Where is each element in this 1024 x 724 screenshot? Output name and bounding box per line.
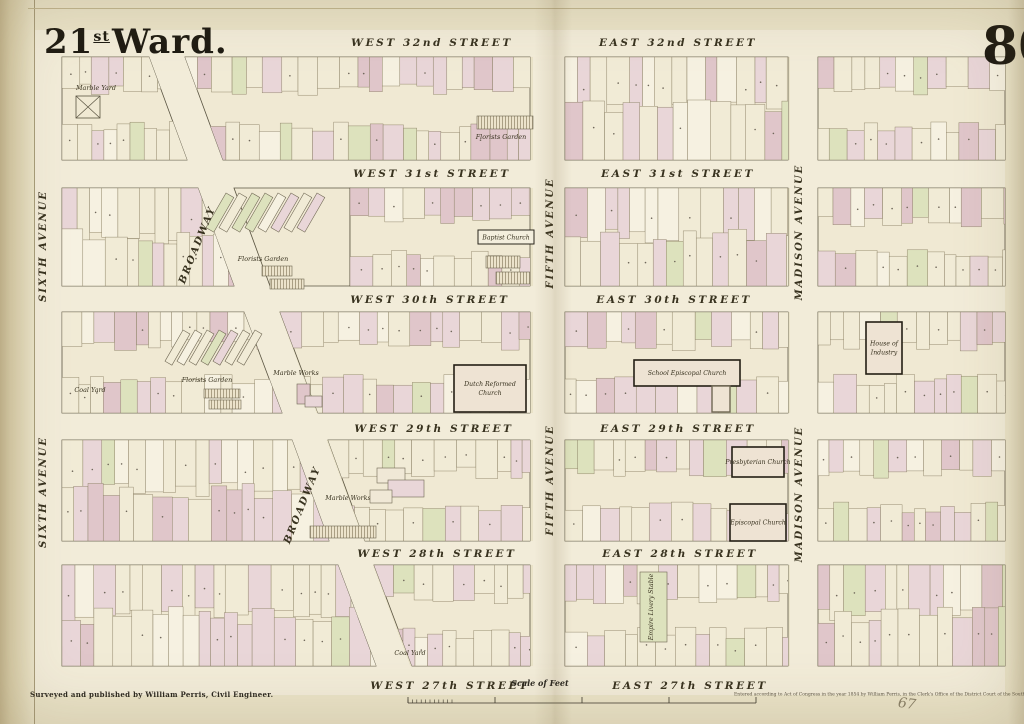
lot bbox=[368, 188, 385, 216]
lot-mark bbox=[857, 209, 859, 211]
lot bbox=[127, 239, 138, 286]
lot bbox=[970, 256, 988, 286]
lot bbox=[143, 565, 162, 616]
lot bbox=[632, 508, 649, 541]
lot bbox=[340, 57, 359, 87]
lot bbox=[768, 565, 780, 601]
lot bbox=[605, 188, 618, 229]
lot-mark bbox=[358, 202, 360, 204]
lot bbox=[693, 504, 711, 541]
lot bbox=[462, 57, 474, 88]
lot-mark bbox=[842, 635, 844, 637]
landmark-xbox-1 bbox=[76, 96, 100, 118]
lot bbox=[296, 619, 313, 666]
street-band bbox=[35, 286, 1005, 312]
lot bbox=[472, 251, 488, 286]
lot-mark bbox=[382, 328, 384, 330]
lot-mark bbox=[953, 391, 955, 393]
map-canvas: Marble YardFlorists GardenBaptist Church… bbox=[0, 0, 1024, 724]
landmark-rect-21 bbox=[712, 386, 730, 412]
lot-mark bbox=[436, 328, 438, 330]
lot bbox=[688, 100, 711, 160]
lot bbox=[292, 128, 312, 160]
lot-mark bbox=[215, 463, 217, 465]
lot bbox=[447, 57, 462, 89]
lot bbox=[881, 505, 903, 541]
lot-mark bbox=[737, 254, 739, 256]
ward-number: 21 bbox=[44, 22, 93, 62]
lot bbox=[818, 440, 829, 476]
lot bbox=[864, 123, 877, 160]
lot bbox=[473, 188, 490, 220]
lot bbox=[62, 620, 81, 666]
lot-mark bbox=[940, 393, 942, 395]
landmark-label: Florists Garden bbox=[237, 255, 289, 263]
lot bbox=[732, 312, 751, 340]
lot-mark bbox=[104, 592, 106, 594]
lot bbox=[94, 565, 116, 615]
lot-mark bbox=[995, 269, 997, 271]
lot bbox=[511, 188, 529, 215]
landmark-hatched-8 bbox=[270, 279, 304, 289]
lot-mark bbox=[92, 469, 94, 471]
lot bbox=[391, 251, 406, 286]
lot-mark bbox=[935, 266, 937, 268]
lot bbox=[62, 488, 74, 541]
lot-mark bbox=[917, 265, 919, 267]
lot bbox=[253, 440, 273, 491]
lot bbox=[113, 616, 132, 666]
lot bbox=[576, 381, 596, 413]
lot bbox=[293, 565, 309, 617]
lot bbox=[309, 565, 321, 614]
lot-mark bbox=[204, 588, 206, 590]
street-name-west: WEST 28th STREET bbox=[357, 548, 516, 560]
lot bbox=[687, 57, 706, 105]
lot bbox=[952, 618, 972, 666]
lot bbox=[710, 102, 731, 161]
lot-mark bbox=[500, 586, 502, 588]
lot bbox=[62, 229, 83, 286]
lot bbox=[232, 57, 246, 94]
street-name-west: WEST 31st STREET bbox=[353, 168, 510, 180]
lot bbox=[412, 382, 430, 413]
lot-mark bbox=[887, 73, 889, 75]
lot bbox=[867, 508, 881, 541]
lot bbox=[587, 636, 604, 666]
lot-mark bbox=[413, 268, 415, 270]
lot-mark bbox=[767, 392, 769, 394]
lot bbox=[252, 609, 274, 667]
lot-mark bbox=[951, 592, 953, 594]
lot bbox=[649, 503, 671, 541]
lot-mark bbox=[605, 393, 607, 395]
lot bbox=[895, 57, 913, 91]
lot bbox=[199, 611, 210, 666]
lot bbox=[818, 128, 829, 160]
landmark-label: House of bbox=[869, 341, 900, 348]
greenhouse-row bbox=[270, 279, 304, 289]
lot bbox=[618, 188, 630, 239]
lot bbox=[565, 440, 578, 469]
lot-mark bbox=[249, 140, 251, 142]
lot bbox=[82, 312, 94, 343]
lot-mark bbox=[978, 269, 980, 271]
lot bbox=[474, 57, 493, 90]
lot bbox=[227, 490, 242, 541]
lot bbox=[626, 635, 638, 667]
lot-mark bbox=[232, 138, 234, 140]
lot bbox=[443, 631, 456, 667]
lot bbox=[105, 237, 127, 286]
lot bbox=[348, 126, 370, 160]
landmark-label: Presbyterian Church bbox=[724, 459, 790, 466]
lot bbox=[947, 375, 962, 413]
lot-mark bbox=[332, 393, 334, 395]
lot-mark bbox=[245, 472, 247, 474]
lot-mark bbox=[376, 139, 378, 141]
lot bbox=[481, 312, 501, 343]
landmark-label: Marble Works bbox=[324, 494, 371, 502]
lot-mark bbox=[398, 266, 400, 268]
lot-mark bbox=[907, 525, 909, 527]
lot bbox=[750, 312, 762, 349]
lot-mark bbox=[532, 580, 534, 582]
lot bbox=[888, 440, 906, 472]
lot bbox=[102, 188, 118, 237]
lot-mark bbox=[944, 633, 946, 635]
lot bbox=[578, 440, 594, 474]
lot bbox=[271, 565, 293, 610]
lot bbox=[433, 565, 453, 601]
lot bbox=[878, 131, 895, 160]
landmark-label-12: Florists Garden bbox=[181, 376, 233, 384]
lot-mark bbox=[426, 270, 428, 272]
lot bbox=[864, 188, 882, 219]
lot bbox=[412, 440, 435, 477]
lot-mark bbox=[955, 206, 957, 208]
map-sheet: Marble YardFlorists GardenBaptist Church… bbox=[0, 0, 1024, 724]
lot bbox=[246, 57, 262, 87]
street-name-east: EAST 31st STREET bbox=[600, 168, 755, 180]
lot-mark bbox=[860, 641, 862, 643]
lot bbox=[133, 495, 152, 541]
lot bbox=[102, 440, 115, 484]
lot-mark bbox=[451, 331, 453, 333]
landmark-rect-28 bbox=[370, 490, 392, 503]
lot bbox=[417, 57, 433, 86]
lot-mark bbox=[403, 580, 405, 582]
avenue-name: FIFTH AVENUE bbox=[545, 424, 556, 536]
lot bbox=[818, 623, 835, 666]
landmark-label: Marble Works bbox=[272, 369, 319, 377]
lot-mark bbox=[284, 639, 286, 641]
lot bbox=[77, 125, 92, 160]
lot bbox=[696, 238, 712, 286]
lot bbox=[369, 57, 382, 92]
lot bbox=[421, 259, 434, 287]
lot-mark bbox=[142, 329, 144, 331]
lot bbox=[830, 312, 843, 340]
lot bbox=[747, 241, 767, 286]
lot bbox=[600, 508, 619, 541]
lot-mark bbox=[432, 202, 434, 204]
lot-mark bbox=[115, 72, 117, 74]
lot bbox=[920, 615, 938, 666]
lot bbox=[835, 254, 856, 286]
lot bbox=[103, 495, 119, 541]
block-e32-5th-mad bbox=[565, 57, 806, 160]
lot-mark bbox=[424, 72, 426, 74]
lot bbox=[857, 385, 870, 413]
lot bbox=[623, 103, 640, 160]
lot bbox=[880, 57, 896, 87]
lot bbox=[913, 188, 929, 217]
lot-mark bbox=[667, 583, 669, 585]
lot bbox=[622, 312, 636, 343]
lot bbox=[302, 312, 324, 347]
lot bbox=[429, 131, 441, 160]
landmark-rect-27 bbox=[388, 480, 424, 497]
lot-mark bbox=[388, 457, 390, 459]
lot-mark bbox=[189, 326, 191, 328]
lot-mark bbox=[361, 269, 363, 271]
lot bbox=[756, 565, 768, 597]
lot-mark bbox=[735, 650, 737, 652]
lot bbox=[410, 312, 431, 346]
lot-mark bbox=[489, 524, 491, 526]
landmark-label-6: Florists Garden bbox=[237, 255, 289, 263]
lot bbox=[978, 374, 997, 413]
lot-mark bbox=[876, 397, 878, 399]
lot bbox=[155, 188, 168, 244]
lot-mark bbox=[423, 583, 425, 585]
landmark-building-20: School Episcopal Church bbox=[634, 360, 740, 386]
lot bbox=[711, 312, 731, 347]
lot-mark bbox=[575, 647, 577, 649]
lot bbox=[971, 503, 986, 541]
lot bbox=[62, 565, 75, 621]
lot bbox=[454, 188, 472, 217]
lot-mark bbox=[463, 584, 465, 586]
lot bbox=[164, 244, 177, 286]
lot-mark bbox=[921, 142, 923, 144]
landmark-building-23: Presbyterian Church bbox=[724, 447, 790, 477]
lot bbox=[454, 258, 472, 286]
lot bbox=[834, 374, 857, 413]
lot bbox=[474, 565, 494, 593]
lot bbox=[565, 102, 583, 160]
lot-mark bbox=[157, 393, 159, 395]
lot bbox=[860, 440, 874, 475]
lot bbox=[386, 510, 404, 541]
lot-mark bbox=[986, 391, 988, 393]
lot-mark bbox=[932, 524, 934, 526]
lot bbox=[74, 486, 88, 541]
lot-mark bbox=[1005, 140, 1007, 142]
lot bbox=[214, 565, 225, 618]
lot bbox=[259, 131, 280, 160]
lot bbox=[182, 565, 195, 621]
lot bbox=[985, 608, 999, 666]
lot-mark bbox=[914, 456, 916, 458]
avenue-name: MADISON AVENUE bbox=[794, 164, 805, 302]
avenue-name: MADISON AVENUE bbox=[794, 426, 805, 564]
lot bbox=[818, 188, 833, 217]
lot-mark bbox=[80, 510, 82, 512]
lot bbox=[211, 57, 232, 92]
lot bbox=[140, 188, 155, 233]
lot-mark bbox=[874, 640, 876, 642]
lot-mark bbox=[301, 593, 303, 595]
greenhouse-row bbox=[310, 526, 376, 538]
lot bbox=[981, 188, 1004, 219]
lot bbox=[946, 132, 959, 160]
lot bbox=[717, 57, 737, 102]
landmark-label: Florists Garden bbox=[475, 133, 527, 141]
lot-mark bbox=[70, 73, 72, 75]
lot bbox=[583, 101, 605, 160]
lot-mark bbox=[984, 329, 986, 331]
lot bbox=[152, 243, 164, 286]
lot-mark bbox=[289, 75, 291, 77]
lot-mark bbox=[263, 517, 265, 519]
lot bbox=[767, 627, 783, 666]
lot-mark bbox=[978, 520, 980, 522]
lot bbox=[471, 124, 490, 160]
greenhouse-row bbox=[262, 266, 292, 276]
lot-mark bbox=[689, 255, 691, 257]
lot bbox=[638, 244, 653, 287]
landmark-label: Dutch Reformed bbox=[463, 381, 516, 388]
lot-mark bbox=[908, 634, 910, 636]
lot-mark bbox=[422, 459, 424, 461]
lot bbox=[898, 609, 920, 666]
lot bbox=[581, 241, 601, 286]
lot-mark bbox=[755, 644, 757, 646]
lot-mark bbox=[465, 141, 467, 143]
lot-mark bbox=[891, 208, 893, 210]
lot bbox=[583, 506, 601, 541]
lot-mark bbox=[220, 257, 222, 259]
lot bbox=[835, 611, 852, 666]
lot-mark bbox=[377, 523, 379, 525]
lot-mark bbox=[773, 584, 775, 586]
lot bbox=[94, 312, 115, 342]
lot bbox=[145, 440, 163, 492]
lot bbox=[726, 638, 745, 666]
lot bbox=[385, 188, 403, 222]
lot bbox=[766, 233, 786, 286]
lot-mark bbox=[611, 210, 613, 212]
lot-mark bbox=[516, 460, 518, 462]
lot bbox=[666, 241, 683, 286]
lot bbox=[358, 57, 369, 87]
landmark-boxed-4: Baptist Church bbox=[478, 230, 534, 244]
ward-ordinal: st bbox=[93, 29, 110, 45]
lot bbox=[948, 312, 961, 340]
lot-mark bbox=[906, 207, 908, 209]
lot-mark bbox=[825, 522, 827, 524]
sheet-right-edge bbox=[1008, 0, 1024, 724]
lot bbox=[209, 440, 222, 483]
lot-mark bbox=[191, 219, 193, 221]
lot bbox=[885, 565, 897, 615]
lot bbox=[699, 565, 717, 603]
lot-mark bbox=[87, 642, 89, 644]
lot bbox=[513, 57, 535, 88]
lot-mark bbox=[68, 595, 70, 597]
lot bbox=[407, 255, 421, 286]
lot-mark bbox=[234, 512, 236, 514]
lot-mark bbox=[726, 583, 728, 585]
lot-mark bbox=[756, 260, 758, 262]
lot-mark bbox=[630, 581, 632, 583]
lot-mark bbox=[452, 521, 454, 523]
lot-mark bbox=[355, 458, 357, 460]
lot-mark bbox=[70, 393, 72, 395]
lot-mark bbox=[142, 634, 144, 636]
lot bbox=[153, 614, 168, 666]
lot-mark bbox=[823, 459, 825, 461]
lot bbox=[645, 440, 656, 470]
lot bbox=[745, 105, 765, 161]
lot-mark bbox=[666, 457, 668, 459]
lot bbox=[596, 378, 615, 413]
lot-mark bbox=[936, 595, 938, 597]
lot bbox=[262, 57, 282, 93]
lot bbox=[624, 565, 638, 596]
lot bbox=[323, 377, 344, 413]
lot bbox=[350, 257, 373, 286]
lot bbox=[914, 57, 928, 95]
lot-mark bbox=[162, 516, 164, 518]
lot bbox=[678, 565, 699, 598]
greenhouse-row bbox=[486, 256, 520, 268]
lot-mark bbox=[902, 589, 904, 591]
lot bbox=[979, 129, 996, 160]
lot bbox=[456, 639, 474, 667]
lot bbox=[961, 376, 977, 413]
lot bbox=[829, 129, 847, 160]
lot-mark bbox=[575, 215, 577, 217]
lot bbox=[137, 382, 150, 414]
lot bbox=[588, 312, 607, 348]
lot-mark bbox=[381, 268, 383, 270]
landmark-label: Industry bbox=[870, 350, 898, 357]
lot bbox=[457, 440, 476, 467]
block-e30-mad bbox=[818, 312, 1015, 413]
lot bbox=[117, 124, 130, 160]
lot bbox=[151, 378, 166, 413]
lot bbox=[153, 497, 173, 541]
lot bbox=[829, 440, 843, 472]
lot bbox=[695, 312, 711, 340]
lot bbox=[657, 107, 673, 160]
lot bbox=[434, 440, 456, 471]
lot bbox=[62, 377, 79, 413]
lot bbox=[675, 627, 696, 666]
lot bbox=[225, 565, 248, 615]
lot bbox=[593, 565, 605, 604]
lot bbox=[614, 440, 626, 476]
lot bbox=[565, 379, 576, 413]
lot bbox=[745, 628, 767, 666]
lot bbox=[312, 131, 333, 160]
lot-mark bbox=[219, 593, 221, 595]
lot bbox=[91, 377, 104, 414]
lot bbox=[645, 188, 658, 243]
